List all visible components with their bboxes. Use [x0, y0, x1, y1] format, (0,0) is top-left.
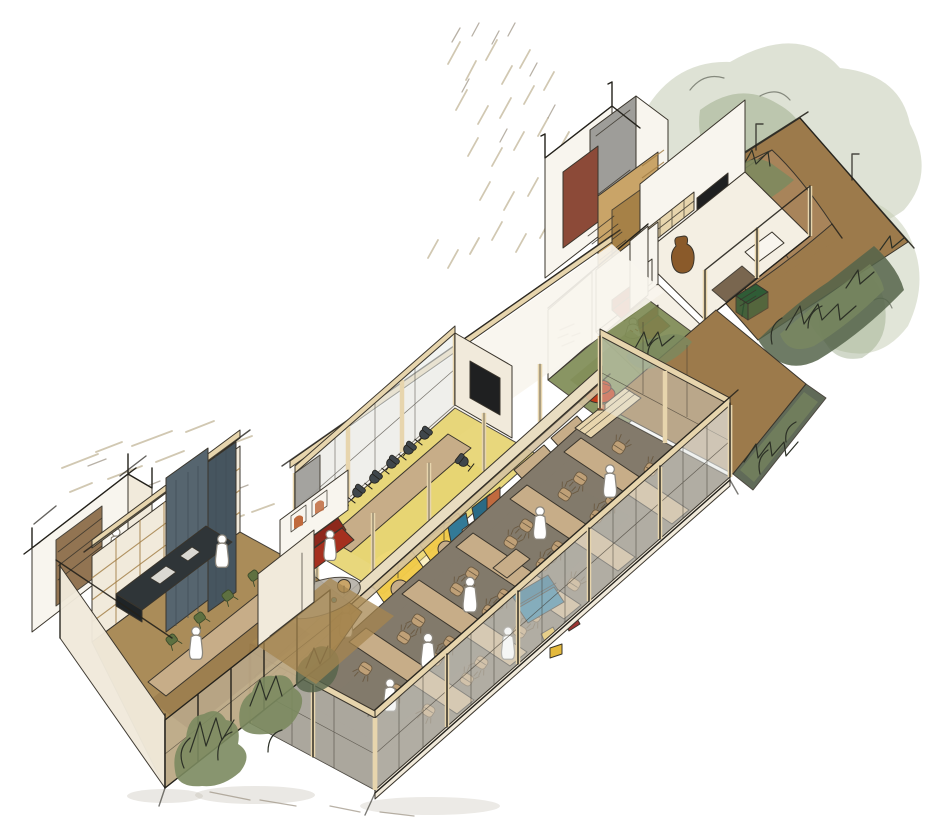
sketch-canvas — [0, 0, 935, 836]
floorplan-illustration — [0, 0, 935, 836]
yellow-sign — [550, 644, 562, 658]
